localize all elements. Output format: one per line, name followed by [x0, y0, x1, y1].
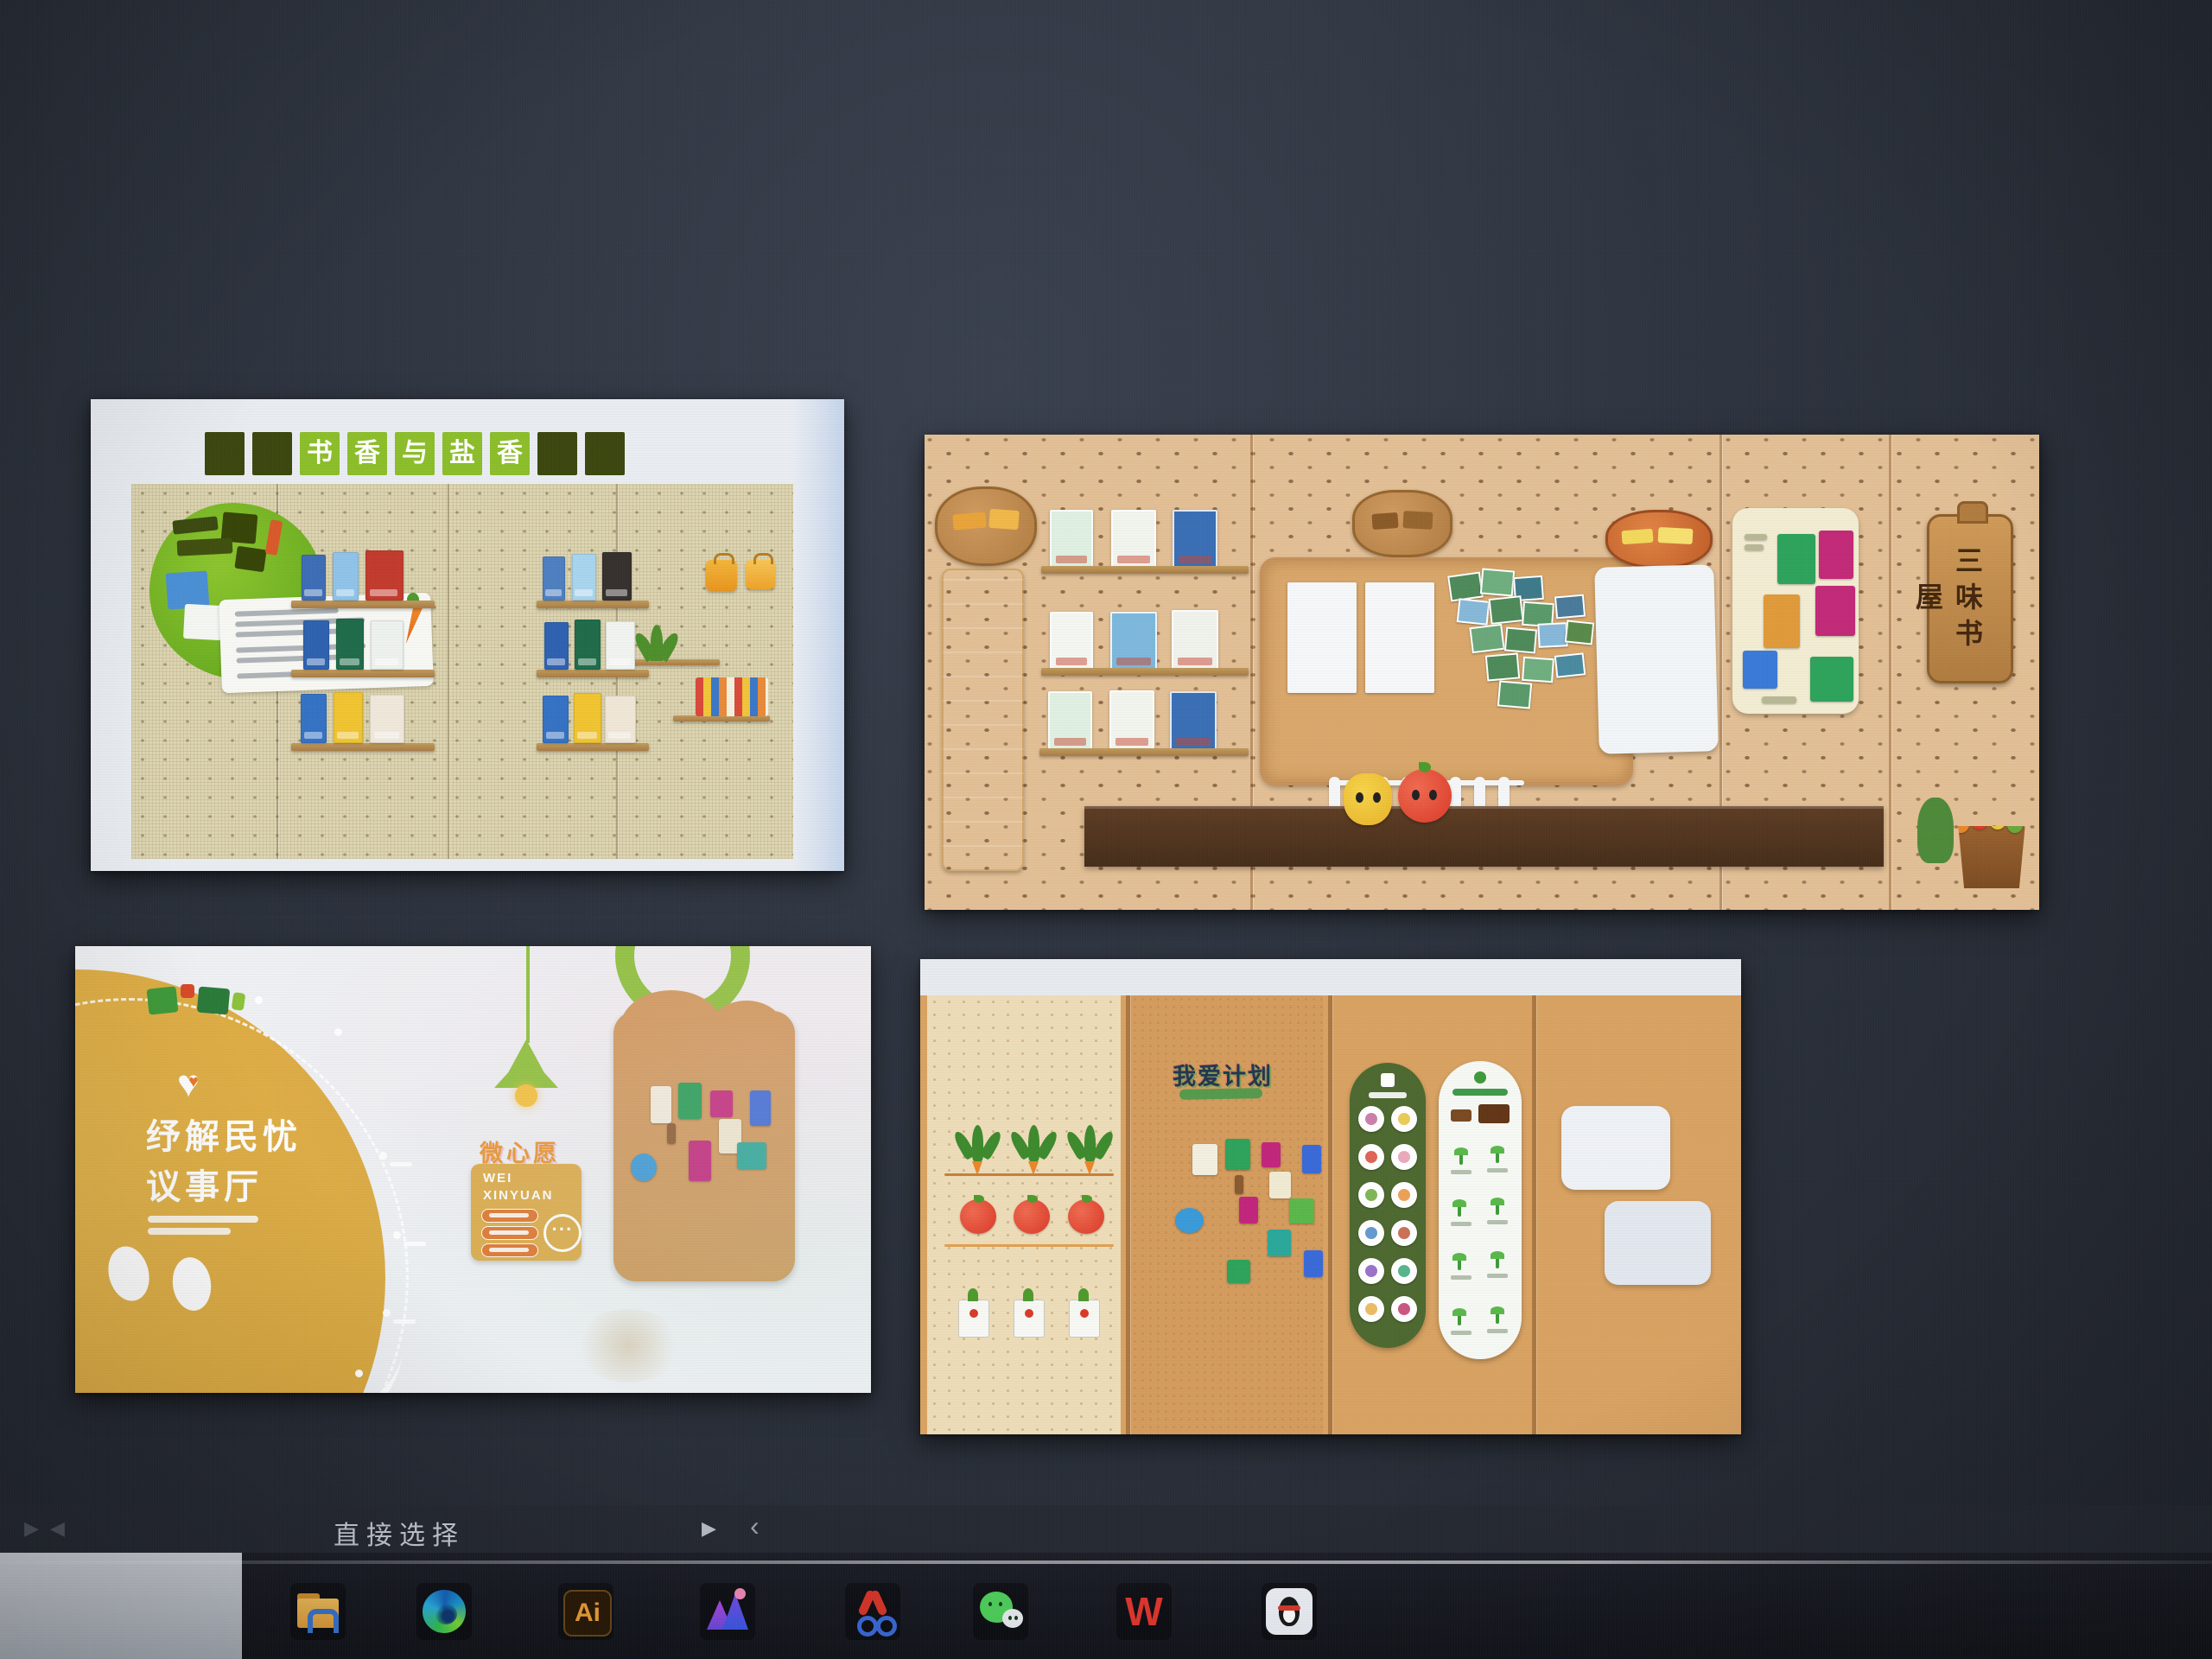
logo-mark: [197, 986, 230, 1014]
capsule-header-icon: [1474, 1071, 1486, 1084]
lamp-cord: [526, 946, 530, 1043]
artwork-yishiting-wall[interactable]: ♥♥ 纾解民忧 议事厅 微心愿 WEI XINYUAN ···: [75, 946, 871, 1393]
hanging-bag: [746, 560, 775, 589]
milestone-marker: [404, 1242, 426, 1246]
book-shelf: [1039, 748, 1249, 756]
pinned-photo: [1489, 595, 1524, 625]
sign-text-mark: [1658, 527, 1694, 544]
ai-design-app-icon[interactable]: [700, 1583, 755, 1640]
seed-packet: [958, 1300, 989, 1338]
sprout-icon: [1491, 1198, 1504, 1215]
smiley-eye: [103, 1242, 155, 1305]
toast-cork-board: [613, 1011, 795, 1281]
active-tool-label: 直接选择: [334, 1514, 465, 1552]
sticky-note: [1227, 1260, 1250, 1283]
pinyin-caption-bar: [148, 1228, 231, 1235]
soil-block: [1451, 1109, 1471, 1122]
logo-mark: [181, 984, 194, 998]
sticky-note: [678, 1083, 702, 1119]
artwork-book-salt-wall[interactable]: 书香与盐香: [91, 399, 844, 871]
sticky-note: [667, 1123, 676, 1144]
pinned-photo: [1480, 568, 1515, 596]
pinned-photo: [1504, 626, 1537, 653]
milestone-marker: [393, 1231, 401, 1239]
sprout-icon: [1491, 1146, 1504, 1163]
plan-subtitle-bar: [1179, 1088, 1262, 1100]
photo-glare: [792, 399, 844, 871]
sticky-note: [1819, 531, 1853, 579]
carrot-plant: [1009, 1122, 1058, 1166]
panel-seam: [1328, 995, 1332, 1434]
sprout-icon: [1491, 1306, 1504, 1324]
wish-pinyin-line2: XINYUAN: [483, 1188, 554, 1203]
sign-text-mark: [1403, 511, 1433, 530]
sign-right: [1605, 510, 1713, 569]
sticky-note: [1764, 594, 1800, 648]
pinned-photo: [1497, 680, 1532, 709]
wish-pinyin-line1: WEI: [483, 1171, 512, 1185]
capsule-header-icon: [1381, 1073, 1395, 1087]
file-explorer-icon[interactable]: [290, 1583, 346, 1640]
cream-note-board: [1732, 508, 1859, 714]
book-spine: [543, 556, 565, 601]
label-bar: [1451, 1170, 1471, 1174]
tomato-icon: [960, 1199, 996, 1234]
label-bar: [1487, 1220, 1508, 1224]
sprout-icon: [1452, 1199, 1466, 1217]
sticky-note: [1269, 1172, 1291, 1198]
pinned-page: [1287, 582, 1357, 693]
panel-seam: [448, 484, 449, 859]
sticky-note: [1302, 1145, 1321, 1173]
title-square: [252, 432, 292, 475]
book-cover: [1050, 612, 1093, 671]
pinned-photo: [1447, 572, 1484, 602]
label-bar: [1487, 1274, 1508, 1278]
sticky-note: [1815, 586, 1855, 636]
logo-mark: [147, 986, 179, 1014]
sticky-note: [1192, 1144, 1217, 1175]
title-square: 香: [347, 432, 387, 475]
book-cover: [1111, 510, 1156, 569]
seed-packet: [1069, 1300, 1100, 1338]
blank-card: [1561, 1106, 1670, 1190]
soil-line: [944, 1173, 1114, 1176]
panel-seam: [1889, 435, 1891, 910]
sticky-note: [737, 1142, 766, 1169]
milestone-marker: [379, 1152, 387, 1160]
bubble-art-mark: [177, 537, 233, 556]
book-spine: [605, 696, 636, 743]
play-icon[interactable]: ▶: [702, 1517, 716, 1540]
pinned-photo: [1554, 594, 1586, 620]
chevron-left-icon[interactable]: ‹: [750, 1510, 760, 1542]
sticky-note: [1745, 544, 1764, 550]
panel-seam: [1126, 995, 1130, 1434]
carrot-plant: [953, 1122, 1001, 1166]
sticky-note: [1304, 1250, 1323, 1277]
growth-chart-capsule: [1439, 1061, 1522, 1359]
book-cover: [1109, 690, 1154, 751]
wish-title: 微心愿: [480, 1135, 560, 1168]
badge-circle: [1358, 1144, 1384, 1170]
book-shelf: [291, 743, 435, 751]
adobe-illustrator-icon[interactable]: Ai: [558, 1583, 613, 1640]
badge-circle: [1358, 1182, 1384, 1208]
fabric-banner: [942, 569, 1024, 871]
badge-circle: [1391, 1144, 1417, 1170]
soil-line: [944, 1244, 1114, 1247]
label-bar: [1487, 1329, 1508, 1333]
title-square: 书: [300, 432, 340, 475]
book-spine: [575, 620, 601, 670]
pinned-photo: [1522, 657, 1554, 683]
sign-text-mark: [988, 509, 1019, 530]
book-shelf: [1041, 566, 1249, 574]
logo-mark: [255, 996, 263, 1004]
sticky-note: [1225, 1139, 1250, 1170]
pinned-photo: [1565, 620, 1595, 645]
book-cover: [1050, 510, 1093, 569]
green-ring-decoration: [615, 946, 750, 1023]
plan-title: 我爱计划: [1173, 1058, 1273, 1091]
wechat-icon[interactable]: [973, 1583, 1028, 1640]
soil-block: [1478, 1104, 1510, 1123]
sanwei-shuwu-plaque: 三味书屋: [1927, 514, 2013, 683]
sticky-note: [710, 1090, 733, 1117]
pinned-page: [1365, 582, 1434, 693]
pepper-character: [1344, 773, 1392, 825]
sign-text-mark: [1621, 529, 1653, 544]
book-shelf: [537, 670, 649, 677]
book-spine: [572, 554, 596, 601]
sticky-note: [719, 1119, 741, 1154]
book-stack: [696, 677, 768, 716]
badge-circle: [1391, 1296, 1417, 1322]
wish-card: WEI XINYUAN ···: [471, 1164, 582, 1261]
book-spine: [602, 552, 632, 601]
smiley-mouth: [75, 1185, 414, 1393]
label-bar: [1451, 1275, 1471, 1280]
wish-pill-button: [481, 1243, 538, 1257]
sprout-icon: [1452, 1253, 1466, 1270]
title-square: 与: [395, 432, 435, 475]
book-spine: [371, 620, 404, 670]
book-cover: [1170, 691, 1217, 751]
blank-card: [1605, 1201, 1711, 1285]
wood-sign-left: [935, 486, 1037, 566]
wooden-shelf-bar: [1084, 806, 1884, 867]
garden-panel: [927, 995, 1121, 1434]
desktop-background: 书香与盐香: [0, 0, 2212, 1659]
book-spine: [370, 695, 404, 743]
bubble-art-mark: [183, 604, 223, 640]
title-square: 盐: [442, 432, 482, 475]
scissors-app-icon[interactable]: [845, 1583, 900, 1640]
sky-band: [920, 959, 1741, 995]
potted-plant-icon: [635, 622, 678, 661]
badge-circle: [1358, 1106, 1384, 1132]
wps-office-icon[interactable]: W: [1116, 1583, 1172, 1640]
book-shelf: [1041, 668, 1249, 676]
tomato-character: [1398, 769, 1452, 823]
qq-icon[interactable]: [1262, 1583, 1317, 1640]
hall-heading-line1: 纾解民忧: [146, 1109, 302, 1159]
badge-circle: [1391, 1106, 1417, 1132]
tomato-icon: [1014, 1199, 1050, 1234]
smiley-circle: [75, 969, 385, 1393]
book-cover: [1173, 510, 1217, 569]
book-shelf: [537, 743, 649, 751]
sign-text-mark: [1371, 512, 1398, 530]
book-spine: [574, 693, 601, 743]
wish-pill-button: [481, 1209, 538, 1223]
sprout-icon: [1452, 1308, 1466, 1325]
book-shelf: [291, 601, 435, 608]
pinned-photo: [1469, 624, 1504, 653]
sticky-note: [1745, 534, 1767, 540]
title-square: [205, 432, 245, 475]
sticky-note: [1810, 657, 1853, 702]
sticky-note: [1743, 651, 1777, 689]
app-status-bar: ▶ ◀ 直接选择 ▶ ‹: [0, 1505, 2212, 1554]
artwork-planting-plan-wall[interactable]: 我爱计划: [920, 959, 1741, 1434]
badge-circle: [1358, 1296, 1384, 1322]
smiley-eye: [169, 1255, 214, 1313]
label-bar: [1451, 1331, 1471, 1335]
card-text-line: [236, 628, 350, 638]
pinned-photo: [1485, 652, 1520, 681]
sticky-note: [1239, 1197, 1258, 1224]
sticky-note: [631, 1154, 657, 1181]
bubble-art-mark: [234, 546, 266, 572]
sticky-note: [1762, 696, 1796, 703]
badge-circle: [1391, 1258, 1417, 1284]
panel-seam: [1532, 995, 1536, 1434]
sprout-icon: [1491, 1251, 1504, 1268]
vegetable-basket: [1955, 826, 2028, 888]
artwork-sanwei-shuwu-wall[interactable]: 三味书屋: [925, 435, 2039, 910]
logo-mark: [232, 992, 246, 1011]
edge-browser-icon[interactable]: [416, 1583, 472, 1640]
book-spine: [333, 552, 359, 601]
book-cover: [1110, 612, 1157, 671]
title-square: 香: [490, 432, 530, 475]
badge-circle: [1358, 1258, 1384, 1284]
book-spine: [543, 696, 569, 743]
book-shelf: [673, 715, 770, 721]
carrot-plant: [1065, 1122, 1114, 1166]
title-square: [537, 432, 577, 475]
speech-badge: ···: [543, 1214, 582, 1252]
tomato-icon: [1068, 1199, 1104, 1234]
sticky-note: [1777, 534, 1815, 584]
book-cover: [1172, 610, 1218, 671]
cork-display-board: [1260, 557, 1633, 785]
capsule-header-bar: [1452, 1089, 1508, 1096]
book-shelf: [537, 601, 649, 608]
card-text-line: [235, 607, 339, 616]
sticky-note: [1268, 1230, 1291, 1256]
label-bar: [1487, 1168, 1508, 1173]
milestone-marker: [390, 1162, 412, 1166]
sprout-icon: [1454, 1147, 1468, 1165]
pinned-photo: [1554, 652, 1586, 677]
book-spine: [303, 620, 329, 670]
dashed-milestone-arc: [75, 998, 409, 1393]
photo-glare-line: [0, 1560, 2212, 1564]
lamp-shade: [494, 1039, 558, 1088]
capsule-header-bar: [1369, 1092, 1407, 1098]
sticky-note: [1262, 1142, 1281, 1167]
watermark-blob: [572, 1309, 684, 1382]
sign-text-mark: [952, 512, 986, 530]
pinned-photo: [1457, 598, 1491, 626]
sticky-note: [1289, 1198, 1314, 1224]
taskbar-light-area: [0, 1553, 242, 1659]
book-shelf: [291, 670, 435, 677]
plan-cork-panel: 我爱计划: [1131, 995, 1323, 1434]
seed-packet: [1014, 1300, 1045, 1338]
green-badge-capsule: [1350, 1063, 1426, 1348]
book-cover: [1048, 691, 1092, 751]
title-square: [585, 432, 625, 475]
plant-decoration: [1917, 798, 1954, 863]
heart-emblem-icon: ♥♥: [177, 1063, 219, 1109]
book-spine: [334, 692, 363, 743]
wood-sign-middle: [1352, 490, 1452, 557]
hall-heading-line2: 议事厅: [146, 1159, 263, 1209]
sticky-note: [750, 1090, 771, 1126]
milestone-marker: [355, 1370, 363, 1377]
book-spine: [336, 619, 364, 670]
pinned-photo: [1537, 622, 1567, 648]
sticky-note: [1235, 1175, 1243, 1194]
book-spine: [544, 622, 569, 670]
prev-icon[interactable]: ▶: [24, 1517, 39, 1540]
lamp-bulb: [515, 1084, 537, 1107]
book-spine: [606, 621, 635, 670]
badge-circle: [1358, 1220, 1384, 1246]
badge-circle: [1391, 1220, 1417, 1246]
pinyin-caption-bar: [148, 1216, 258, 1223]
sticky-note: [1175, 1208, 1204, 1233]
wish-pill-button: [481, 1226, 538, 1240]
book-spine: [365, 550, 404, 601]
label-bar: [1451, 1222, 1471, 1226]
book-spine: [301, 694, 327, 743]
windows-taskbar: Ai W: [0, 1553, 2212, 1659]
hanging-bag: [706, 560, 737, 591]
sticky-note: [689, 1141, 711, 1181]
next-icon[interactable]: ◀: [50, 1517, 65, 1540]
milestone-marker: [393, 1319, 416, 1324]
milestone-marker: [383, 1309, 391, 1317]
sticky-note: [651, 1086, 671, 1123]
badge-circle: [1391, 1182, 1417, 1208]
book-spine: [302, 555, 326, 601]
white-board: [1594, 564, 1719, 754]
milestone-marker: [334, 1028, 342, 1036]
plaque-title: 三味书屋: [1953, 529, 1987, 672]
